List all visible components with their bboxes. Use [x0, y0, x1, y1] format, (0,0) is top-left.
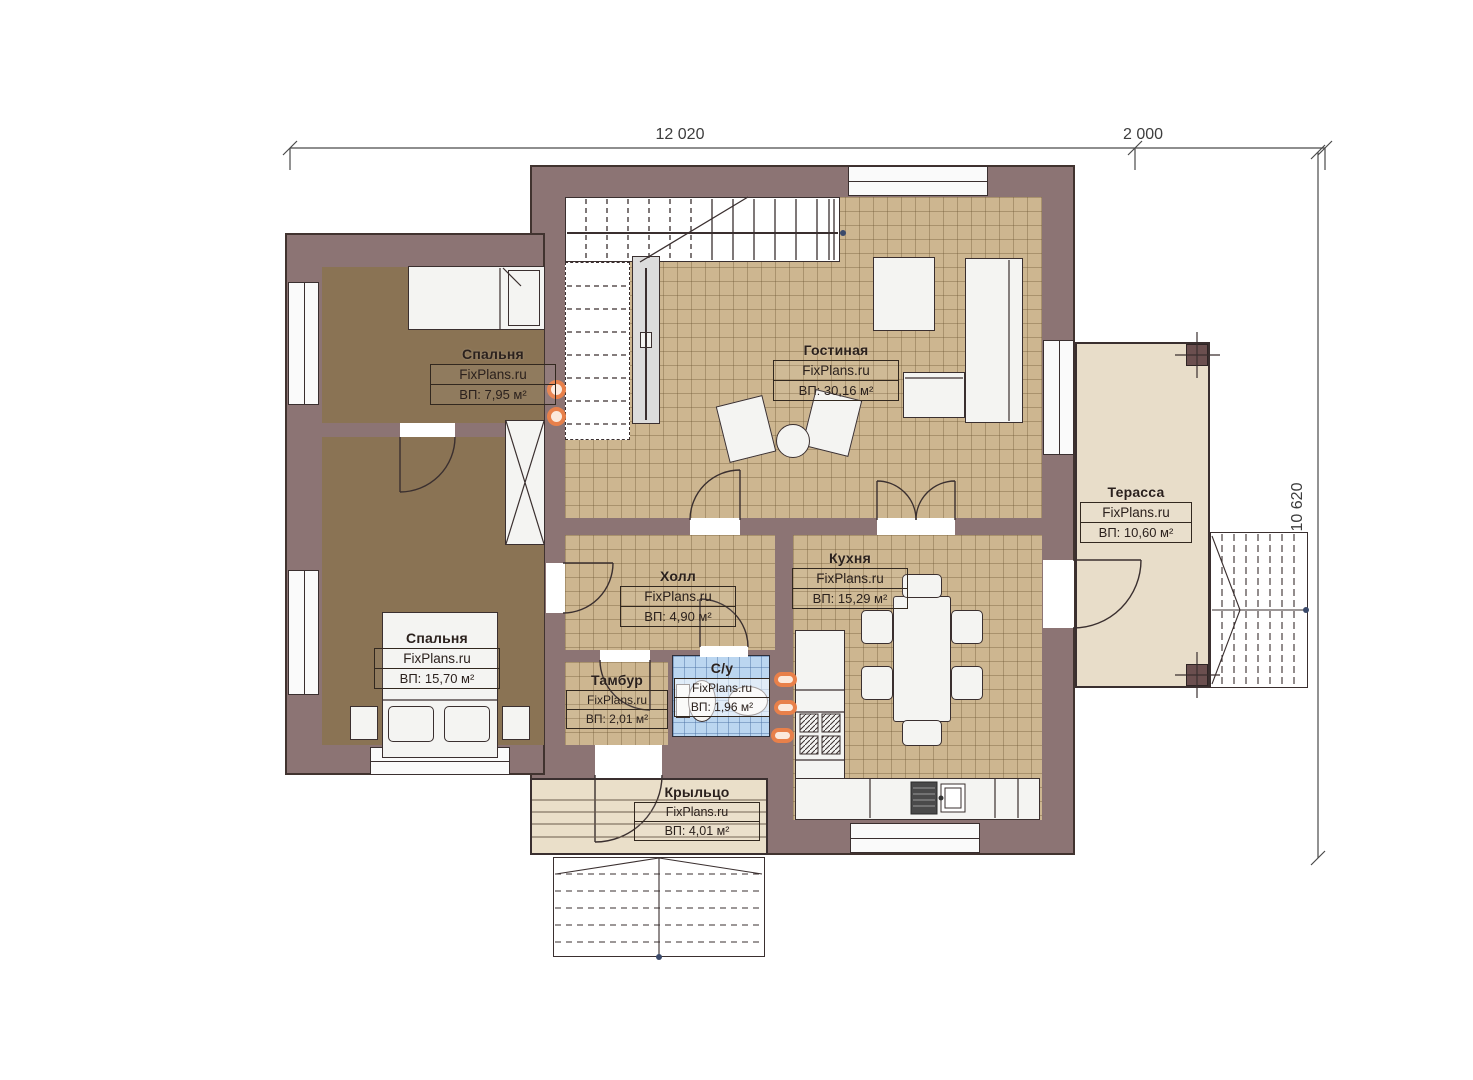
terrace-post-top [1186, 344, 1208, 366]
room-name: Спальня [430, 346, 556, 362]
room-name: Холл [620, 568, 736, 584]
coffee-table [776, 424, 810, 458]
chair-left-2 [861, 666, 893, 700]
room-info-box: FixPlans.ru ВП: 4,90 м² [620, 586, 736, 627]
sofa-chaise [903, 372, 965, 418]
room-label-porch: Крыльцо FixPlans.ru ВП: 4,01 м² [634, 784, 760, 841]
window-left-bedroom2 [288, 570, 319, 695]
brand-watermark: FixPlans.ru [375, 649, 499, 669]
room-name: Тамбур [566, 672, 668, 688]
door-opening-bedroom2-hall [546, 563, 565, 613]
room-label-living: Гостиная FixPlans.ru ВП: 30,16 м² [773, 342, 899, 401]
tv-panel [640, 332, 652, 348]
window-left-bedroom1 [288, 282, 319, 405]
room-info-box: FixPlans.ru ВП: 7,95 м² [430, 364, 556, 405]
brand-watermark: FixPlans.ru [1081, 503, 1191, 523]
bed-pillow-left [388, 706, 434, 742]
chair-left-1 [861, 610, 893, 644]
brand-watermark: FixPlans.ru [774, 361, 898, 381]
room-area: ВП: 15,29 м² [793, 589, 907, 608]
room-info-box: FixPlans.ru ВП: 1,96 м² [674, 678, 770, 717]
room-area: ВП: 1,96 м² [675, 698, 769, 716]
room-label-tambour: Тамбур FixPlans.ru ВП: 2,01 м² [566, 672, 668, 729]
door-opening-living-kitchen [877, 518, 955, 535]
room-label-bedroom1: Спальня FixPlans.ru ВП: 7,95 м² [430, 346, 556, 405]
chair-right-1 [951, 610, 983, 644]
room-area: ВП: 15,70 м² [375, 669, 499, 688]
brand-watermark: FixPlans.ru [621, 587, 735, 607]
door-opening-entrance [595, 745, 662, 778]
door-opening-hall-tambour [600, 650, 650, 662]
door-opening-hall-wc [700, 646, 748, 657]
door-opening-hall-living [690, 518, 740, 535]
room-info-box: FixPlans.ru ВП: 30,16 м² [773, 360, 899, 401]
brand-watermark: FixPlans.ru [431, 365, 555, 385]
room-area: ВП: 2,01 м² [567, 710, 667, 728]
window-top-living [848, 166, 988, 196]
room-area: ВП: 30,16 м² [774, 381, 898, 400]
room-name: Гостиная [773, 342, 899, 358]
chair-right-2 [951, 666, 983, 700]
room-info-box: FixPlans.ru ВП: 4,01 м² [634, 802, 760, 841]
heat-marker-5 [771, 728, 794, 743]
nightstand-right [502, 706, 530, 740]
room-name: Кухня [792, 550, 908, 566]
terrace-post-bottom [1186, 664, 1208, 686]
wardrobe [505, 420, 545, 545]
room-label-hall: Холл FixPlans.ru ВП: 4,90 м² [620, 568, 736, 627]
room-area: ВП: 4,01 м² [635, 822, 759, 840]
room-label-bedroom2: Спальня FixPlans.ru ВП: 15,70 м² [374, 630, 500, 689]
door-opening-kitchen-terrace [1043, 560, 1074, 628]
brand-watermark: FixPlans.ru [675, 679, 769, 698]
room-name: Спальня [374, 630, 500, 646]
room-name: Терасса [1080, 484, 1192, 500]
brand-watermark: FixPlans.ru [635, 803, 759, 822]
room-area: ВП: 7,95 м² [431, 385, 555, 404]
brand-watermark: FixPlans.ru [793, 569, 907, 589]
room-area: ВП: 4,90 м² [621, 607, 735, 626]
sofa-main [965, 258, 1023, 423]
porch-steps [553, 857, 765, 957]
room-info-box: FixPlans.ru ВП: 2,01 м² [566, 690, 668, 729]
room-name: С/у [674, 660, 770, 676]
dimension-right-side: 10 620 [1289, 447, 1307, 567]
room-label-terrace: Терасса FixPlans.ru ВП: 10,60 м² [1080, 484, 1192, 543]
chair-bottom [902, 720, 942, 746]
stair-upper-flight [565, 197, 840, 262]
bed-pillow-right [444, 706, 490, 742]
door-opening-bedrooms [400, 423, 455, 437]
heat-marker-3 [774, 672, 797, 687]
room-info-box: FixPlans.ru ВП: 10,60 м² [1080, 502, 1192, 543]
window-right-living [1043, 340, 1074, 455]
room-info-box: FixPlans.ru ВП: 15,29 м² [792, 568, 908, 609]
room-label-kitchen: Кухня FixPlans.ru ВП: 15,29 м² [792, 550, 908, 609]
room-info-box: FixPlans.ru ВП: 15,70 м² [374, 648, 500, 689]
room-area: ВП: 10,60 м² [1081, 523, 1191, 542]
room-label-wc: С/у FixPlans.ru ВП: 1,96 м² [674, 660, 770, 717]
room-name: Крыльцо [634, 784, 760, 800]
floor-plan-canvas: Спальня FixPlans.ru ВП: 7,95 м² Спальня … [0, 0, 1473, 1080]
chair-top [902, 574, 942, 598]
dimension-top-main: 12 020 [630, 126, 730, 144]
brand-watermark: FixPlans.ru [567, 691, 667, 710]
heat-marker-4 [774, 700, 797, 715]
kitchen-counter-bottom [795, 778, 1040, 820]
heat-marker-2 [547, 407, 566, 426]
bed-single-pillow [508, 270, 540, 326]
nightstand-left [350, 706, 378, 740]
dimension-top-right: 2 000 [1093, 126, 1193, 144]
stair-lower-flight [565, 262, 630, 440]
dining-table [893, 596, 951, 722]
living-table [873, 257, 935, 331]
window-bottom-kitchen [850, 823, 980, 853]
